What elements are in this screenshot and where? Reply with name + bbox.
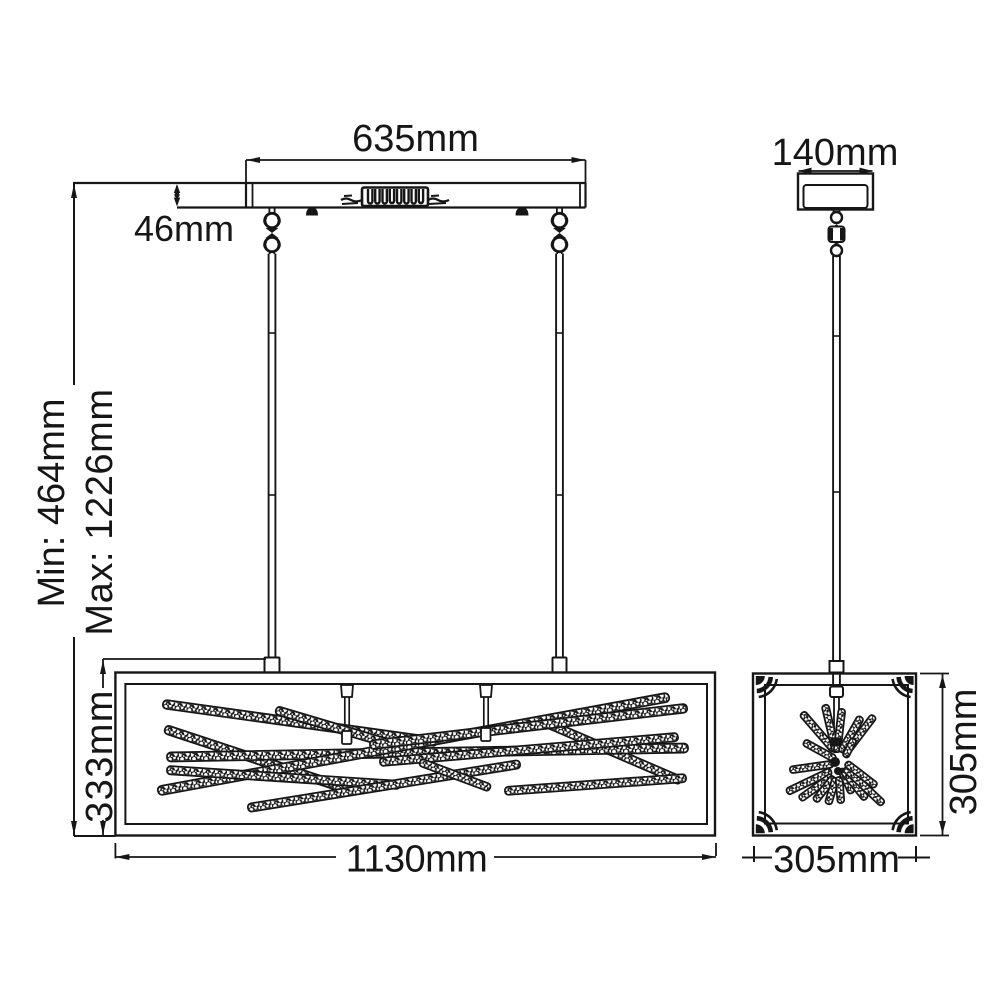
svg-text:333mm: 333mm (79, 689, 121, 823)
svg-text:46mm: 46mm (134, 208, 234, 249)
svg-text:1130mm: 1130mm (346, 839, 487, 881)
svg-text:Min: 464mm: Min: 464mm (31, 398, 73, 607)
svg-text:305mm: 305mm (943, 689, 985, 816)
svg-text:140mm: 140mm (772, 132, 899, 174)
svg-text:Max: 1226mm: Max: 1226mm (79, 388, 121, 635)
svg-text:305mm: 305mm (773, 839, 900, 881)
svg-text:635mm: 635mm (352, 118, 479, 160)
